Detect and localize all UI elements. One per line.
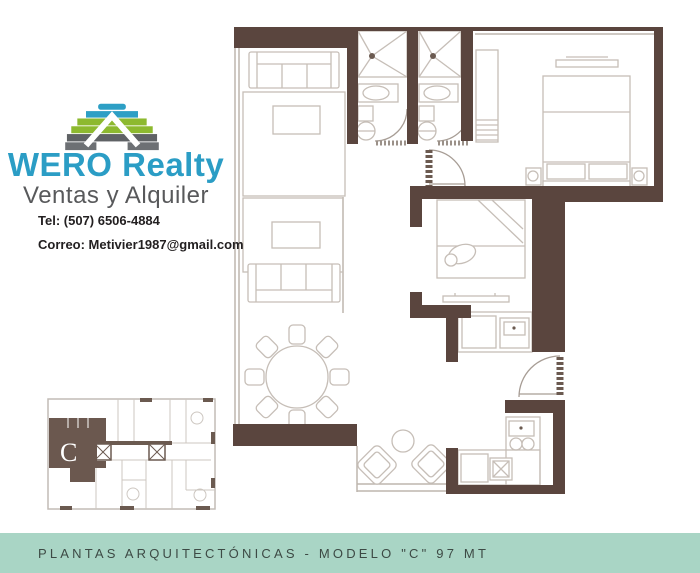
master-bedroom-furniture — [476, 50, 647, 188]
wall-kitchen-south — [446, 485, 565, 494]
bathroom-1-fixtures — [357, 31, 407, 140]
brand-tagline: Ventas y Alquiler — [0, 182, 232, 210]
living-room-furniture — [243, 52, 345, 302]
floor-plan-drawing: C — [0, 0, 700, 573]
wall-core — [532, 199, 565, 352]
phone-number: Tel: (507) 6506-4884 — [38, 213, 160, 228]
plan-caption: PLANTAS ARQUITECTÓNICAS - MODELO "C" 97 … — [38, 533, 489, 573]
email-address: Correo: Metivier1987@gmail.com — [38, 237, 244, 252]
wall-right — [654, 27, 663, 197]
footer-bar: PLANTAS ARQUITECTÓNICAS - MODELO "C" 97 … — [0, 533, 700, 573]
key-plan-unit-letter: C — [60, 438, 77, 467]
wall-living-top — [234, 27, 358, 48]
wall-balcony — [233, 424, 357, 446]
logo-arch-icon — [65, 104, 159, 150]
bathroom-2-fixtures — [418, 31, 461, 140]
dining-set — [245, 325, 349, 429]
bedroom-2-furniture — [437, 200, 525, 302]
terrace-furniture — [356, 430, 452, 486]
key-plan: C — [48, 398, 215, 510]
flyer-canvas: C WERO Realty Ventas y Alquiler Tel: (50… — [0, 0, 700, 573]
brand-name: WERO Realty — [0, 146, 232, 184]
